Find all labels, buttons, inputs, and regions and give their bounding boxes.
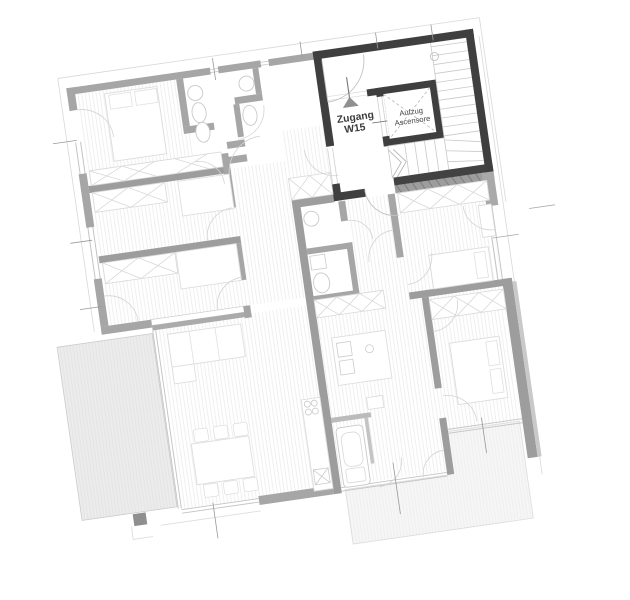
svg-text:W15: W15: [344, 122, 367, 136]
